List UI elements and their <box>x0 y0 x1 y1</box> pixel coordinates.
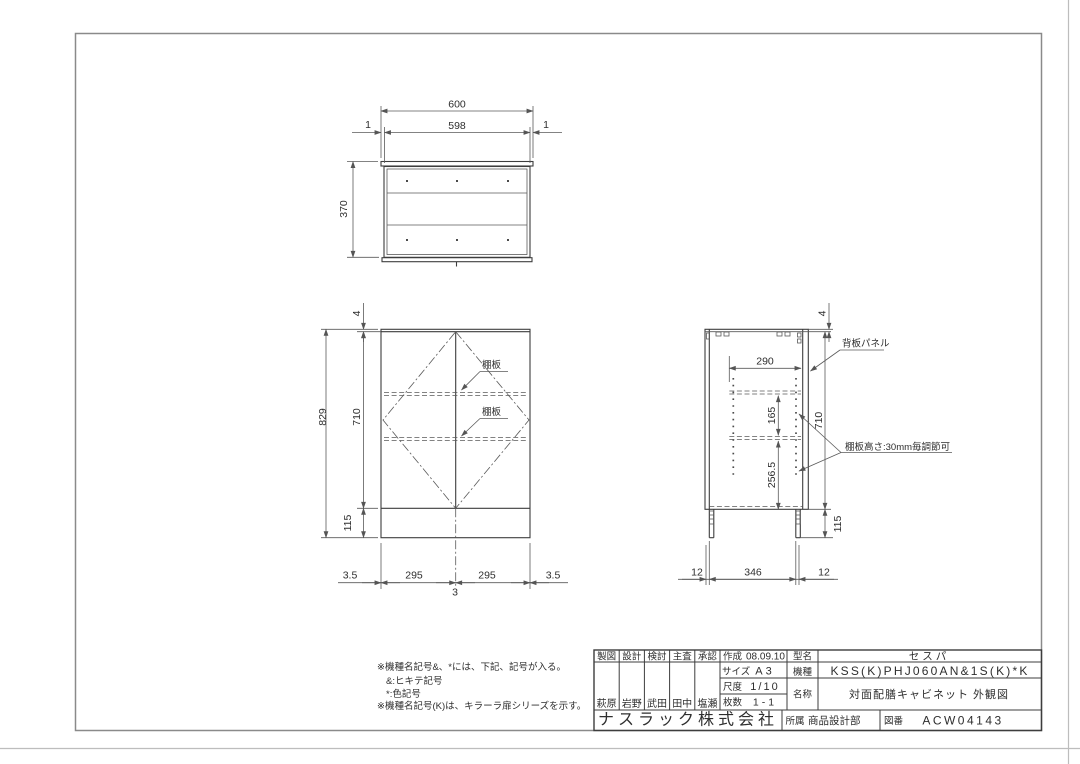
top-view: 600 598 1 1 370 <box>338 99 562 267</box>
note-line-1: ※機種名記号&、*には、下記、記号が入る。 <box>377 661 566 673</box>
header-checked: 検討 <box>647 651 667 663</box>
sheets-label: 枚数 <box>723 697 743 709</box>
side-dim-base-depth: 346 <box>744 567 762 579</box>
top-view-geometry <box>381 162 533 267</box>
drawing-no-label: 図番 <box>884 715 904 727</box>
side-dim-shelf-pitch: 165 <box>766 407 778 425</box>
name-approved: 塩瀬 <box>697 697 717 710</box>
dept-value: 商品設計部 <box>808 714 861 727</box>
dept-label: 所属 <box>786 716 805 727</box>
side-dim-top-thickness: 4 <box>817 310 829 316</box>
scale-value: 1/10 <box>750 681 779 693</box>
model-value: セスパ <box>909 651 950 663</box>
scale-label: 尺度 <box>723 681 743 693</box>
front-dim-body-height: 710 <box>351 408 363 426</box>
front-dim-center-gap: 3 <box>452 587 458 599</box>
side-view: 290 165 256.5 710 4 115 <box>678 303 952 585</box>
title-block-approval: 製図 設計 検討 主査 承認 萩原 岩野 武田 田中 塩瀬 <box>597 651 718 711</box>
side-dim-lower-clear: 256.5 <box>766 462 778 488</box>
header-drafted: 製図 <box>597 651 616 663</box>
front-dim-left-edge: 3.5 <box>343 570 358 582</box>
side-dim-base-height: 115 <box>832 515 844 532</box>
note-line-3: *:色記号 <box>386 688 421 700</box>
header-designed: 設計 <box>622 651 642 663</box>
created-label: 作成 <box>723 651 743 663</box>
header-chief: 主査 <box>673 651 693 663</box>
drawing-canvas: 600 598 1 1 370 棚板 <box>0 0 1080 764</box>
machine-value: KSS(K)PHJ060AN&1S(K)*K <box>830 664 1029 678</box>
name-value: 対面配膳キャビネット 外観図 <box>849 687 1009 701</box>
header-approved: 承認 <box>698 651 718 663</box>
name-label: 名称 <box>793 689 813 701</box>
top-view-dimensions: 600 598 1 1 370 <box>338 99 562 258</box>
title-block-company-row: ナスラック株式会社 所属 商品設計部 図番 ACW04143 <box>598 711 1004 729</box>
front-dim-left-door: 295 <box>405 570 423 582</box>
top-dim-outer-width: 600 <box>448 99 466 111</box>
side-view-annotations: 背板パネル 棚板高さ:30mm毎調節可 <box>799 338 952 472</box>
created-date: 08.09.10 <box>746 652 785 663</box>
title-block: 製図 設計 検討 主査 承認 萩原 岩野 武田 田中 塩瀬 作成 08.09.1… <box>594 650 1042 731</box>
name-chief: 田中 <box>672 697 692 710</box>
front-dim-top-thickness: 4 <box>351 310 363 316</box>
side-dim-inner-depth: 290 <box>756 356 774 368</box>
front-view-shelf-labels: 棚板 棚板 <box>462 359 509 436</box>
size-label: サイズ <box>722 666 751 678</box>
machine-label: 機種 <box>793 666 813 678</box>
name-drafted: 萩原 <box>597 698 617 710</box>
drawing-sheet: 600 598 1 1 370 棚板 <box>0 0 1080 764</box>
shelf-label-lower: 棚板 <box>482 406 502 418</box>
front-view-geometry <box>381 329 530 586</box>
front-view: 棚板 棚板 829 710 115 4 <box>317 303 568 599</box>
top-dim-left-gap: 1 <box>365 119 371 131</box>
top-dim-inner-width: 598 <box>448 120 466 132</box>
model-label: 型名 <box>793 651 812 663</box>
back-panel-label: 背板パネル <box>842 338 890 350</box>
company-name: ナスラック株式会社 <box>598 711 778 729</box>
size-value: A3 <box>755 666 774 678</box>
front-dim-right-edge: 3.5 <box>546 570 561 582</box>
name-checked: 武田 <box>647 697 667 710</box>
side-dim-body-height: 710 <box>813 412 825 430</box>
side-dim-base-front: 12 <box>691 567 703 579</box>
note-line-2: &:ヒキテ記号 <box>386 675 442 687</box>
top-dim-depth: 370 <box>338 200 350 218</box>
top-dim-right-gap: 1 <box>543 119 549 131</box>
side-dim-base-rear: 12 <box>818 567 830 579</box>
note-line-4: ※機種名記号(K)は、キラーラ扉シリーズを示す。 <box>377 700 586 712</box>
front-dim-total-height: 829 <box>317 408 329 426</box>
shelf-height-note: 棚板高さ:30mm毎調節可 <box>845 441 950 453</box>
notes: ※機種名記号&、*には、下記、記号が入る。 &:ヒキテ記号 *:色記号 ※機種名… <box>377 661 586 712</box>
front-dim-base-height: 115 <box>342 514 354 531</box>
title-block-meta: 作成 08.09.10 サイズ A3 尺度 1/10 枚数 1-1 型名 セスパ… <box>722 651 1030 709</box>
name-designed: 岩野 <box>622 697 642 710</box>
sheets-value: 1-1 <box>753 697 777 709</box>
side-view-dimensions: 290 165 256.5 710 4 115 <box>678 303 844 585</box>
drawing-no-value: ACW04143 <box>922 714 1003 728</box>
shelf-label-upper: 棚板 <box>482 359 502 371</box>
front-dim-right-door: 295 <box>478 570 496 582</box>
